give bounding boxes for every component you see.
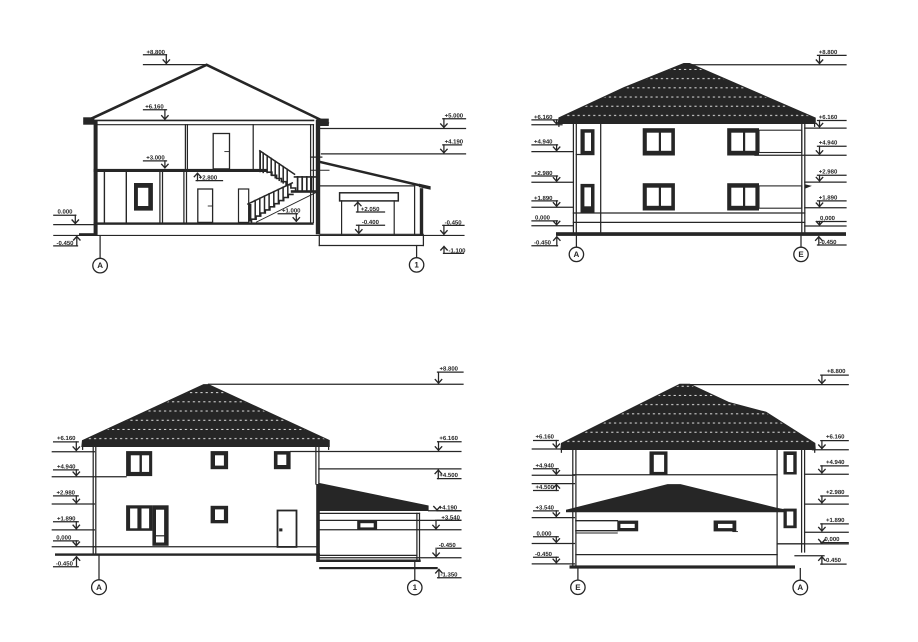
- svg-text:+8.800: +8.800: [440, 365, 459, 372]
- svg-text:+8.800: +8.800: [827, 368, 846, 375]
- svg-text:E: E: [798, 250, 804, 259]
- svg-text:A: A: [797, 583, 803, 592]
- svg-text:+6.160: +6.160: [439, 435, 458, 442]
- svg-text:+6.160: +6.160: [536, 434, 555, 441]
- svg-text:+6.160: +6.160: [57, 435, 76, 442]
- svg-text:1: 1: [413, 583, 418, 592]
- svg-text:+4.940: +4.940: [819, 140, 838, 147]
- svg-text:+1.890: +1.890: [826, 517, 845, 524]
- svg-text:A: A: [574, 250, 580, 259]
- svg-text:A: A: [97, 261, 103, 270]
- svg-text:E: E: [575, 583, 581, 592]
- svg-text:+6.160: +6.160: [819, 114, 838, 121]
- svg-text:1: 1: [414, 261, 419, 270]
- svg-text:0,000: 0,000: [820, 215, 836, 222]
- svg-text:+1.890: +1.890: [819, 194, 838, 201]
- svg-text:-0.450: -0.450: [824, 557, 842, 564]
- svg-text:+6.160: +6.160: [826, 434, 845, 441]
- svg-text:+2.980: +2.980: [819, 169, 838, 176]
- svg-text:A: A: [96, 583, 102, 592]
- svg-text:0,000: 0,000: [825, 536, 841, 543]
- svg-text:+4.940: +4.940: [826, 459, 845, 466]
- svg-text:+2.980: +2.980: [826, 489, 845, 496]
- svg-text:0.000: 0.000: [58, 208, 74, 215]
